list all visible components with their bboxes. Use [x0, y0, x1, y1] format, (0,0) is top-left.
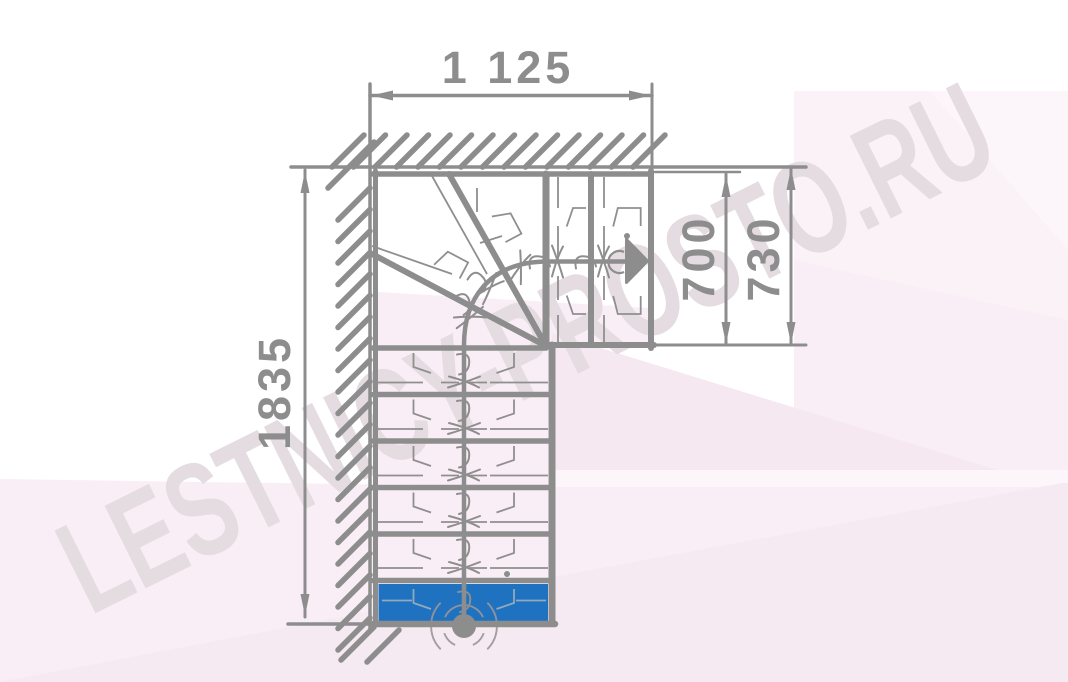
svg-text:1835: 1835 — [249, 334, 300, 450]
svg-text:1 125: 1 125 — [442, 42, 575, 93]
svg-text:730: 730 — [738, 214, 789, 301]
svg-text:700: 700 — [673, 214, 724, 301]
